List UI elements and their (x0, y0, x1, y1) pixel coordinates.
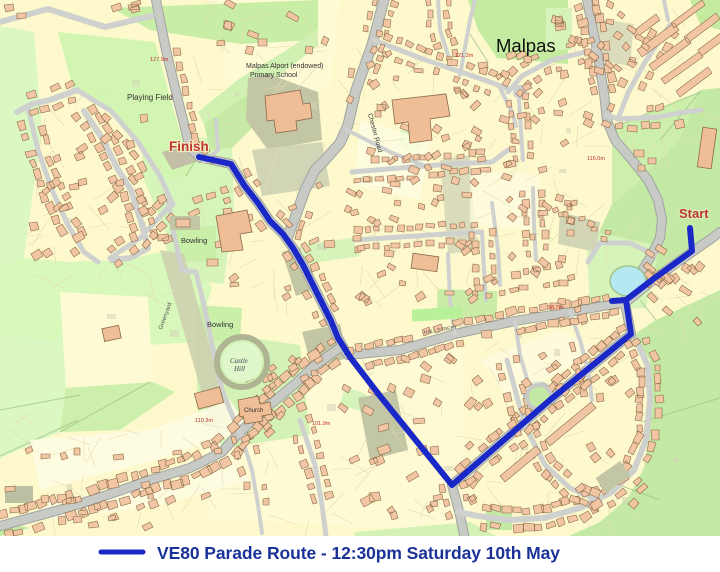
svg-text:Bowling: Bowling (207, 320, 233, 329)
svg-text:Finish: Finish (169, 139, 209, 154)
svg-text:Bowling: Bowling (181, 236, 207, 245)
svg-text:Malpas: Malpas (496, 35, 556, 56)
svg-text:Castle: Castle (230, 357, 248, 365)
svg-text:98.7m: 98.7m (548, 305, 564, 311)
svg-text:Start: Start (679, 206, 709, 221)
svg-text:Church: Church (244, 408, 263, 414)
svg-text:110.3m: 110.3m (195, 418, 213, 424)
svg-text:101.9m: 101.9m (312, 421, 331, 427)
svg-text:Malpas Alport (endowed): Malpas Alport (endowed) (246, 63, 323, 70)
svg-text:127.9m: 127.9m (150, 57, 169, 63)
svg-text:VE80 Parade Route - 12:30pm Sa: VE80 Parade Route - 12:30pm Saturday 10t… (157, 543, 560, 563)
svg-text:Hill: Hill (233, 365, 245, 373)
svg-text:Primary School: Primary School (250, 72, 298, 79)
svg-text:Playing Field: Playing Field (127, 93, 173, 102)
svg-text:121.2m: 121.2m (455, 53, 474, 59)
svg-text:115.0m: 115.0m (587, 156, 605, 162)
